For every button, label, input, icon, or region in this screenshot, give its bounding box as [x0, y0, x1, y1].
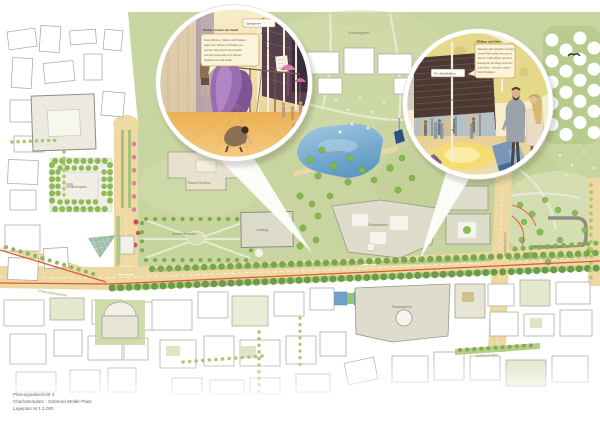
staatsgalerie-complex: [334, 284, 485, 342]
plaza-bubble-title: Philipp und Marie: [477, 40, 502, 44]
playground-tag-label: Spielgarten: [246, 22, 262, 26]
title-block-line2: Charlottenplatz - Gebhard-Müller-Platz: [13, 399, 92, 404]
map-label-staatsgalerie: Staatsgalerie: [392, 305, 412, 309]
bubble-line: laden zum Klettern und Malen ein.: [204, 43, 244, 47]
map-label-landtag: Landtag: [256, 228, 268, 232]
map-label-konrad-west: Konrad-Adenauer-Straße: [196, 281, 240, 287]
map-label-karlsplatz: Karlsplatz: [72, 185, 87, 189]
parterre-garden: [88, 235, 116, 258]
plaza-tag-label: Der Stadtbalkon: [434, 72, 456, 76]
plaza-speech-bubble: Philipp und Marie Zwischen den Arkaden u…: [468, 40, 515, 78]
title-block-line3: Lageplan M 1:1.000: [13, 406, 54, 411]
wilhelmspalais: [95, 300, 145, 345]
map-label-eckensee: Eckensee: [330, 150, 345, 154]
map-canvas: Kinder erobern die Stadt Kleine Bühnen, …: [0, 0, 600, 434]
bubble-line: Kleine Bühnen, Wände und Podeste: [204, 38, 246, 42]
map-label-akademiegarten: Akademiegarten: [172, 232, 197, 236]
map-label-schlossgarten: Schlossgarten: [348, 31, 370, 35]
map-label-neues-schloss: Neues Schloss: [188, 181, 211, 185]
map-label-charlottenstrasse: Charlottenstraße: [38, 289, 67, 298]
bubble-line: wird die Kulturmeile zum offenen: [204, 53, 242, 57]
planie-road: [113, 115, 140, 290]
plaza-tag: Der Stadtbalkon: [431, 69, 465, 77]
playground-tag: Spielgarten: [243, 19, 275, 27]
title-block-line1: Planungsabschnitt 4: [13, 392, 55, 397]
bottom-fade: [0, 360, 600, 402]
bubble-line: neuen Park treffen wir uns am: [478, 52, 513, 56]
bubble-line: Abend: Cafés öffnen sich zum: [478, 56, 513, 60]
playground-bubble-title: Kinder erobern die Stadt: [203, 28, 238, 32]
bubble-line: Boulevard, die Wege sind kurz: [478, 61, 514, 65]
bubble-line: Stück Stuttgart.: [478, 70, 496, 74]
bubble-line: Spielraum für alle Kinder.: [204, 58, 233, 62]
map-label-staatstheater: Staatstheater: [368, 223, 389, 227]
bubble-line: und sicher – ein ganz neues: [478, 65, 511, 69]
map-label-schillerstrasse: Schillerstraße: [503, 232, 507, 256]
akademiegarten: [140, 216, 253, 262]
bubble-line: Auf dem Weg durch das Quartier: [204, 48, 242, 52]
site-plan-page: Kinder erobern die Stadt Kleine Bühnen, …: [0, 0, 600, 434]
bubble-line: Zwischen den Arkaden und dem: [478, 47, 515, 51]
